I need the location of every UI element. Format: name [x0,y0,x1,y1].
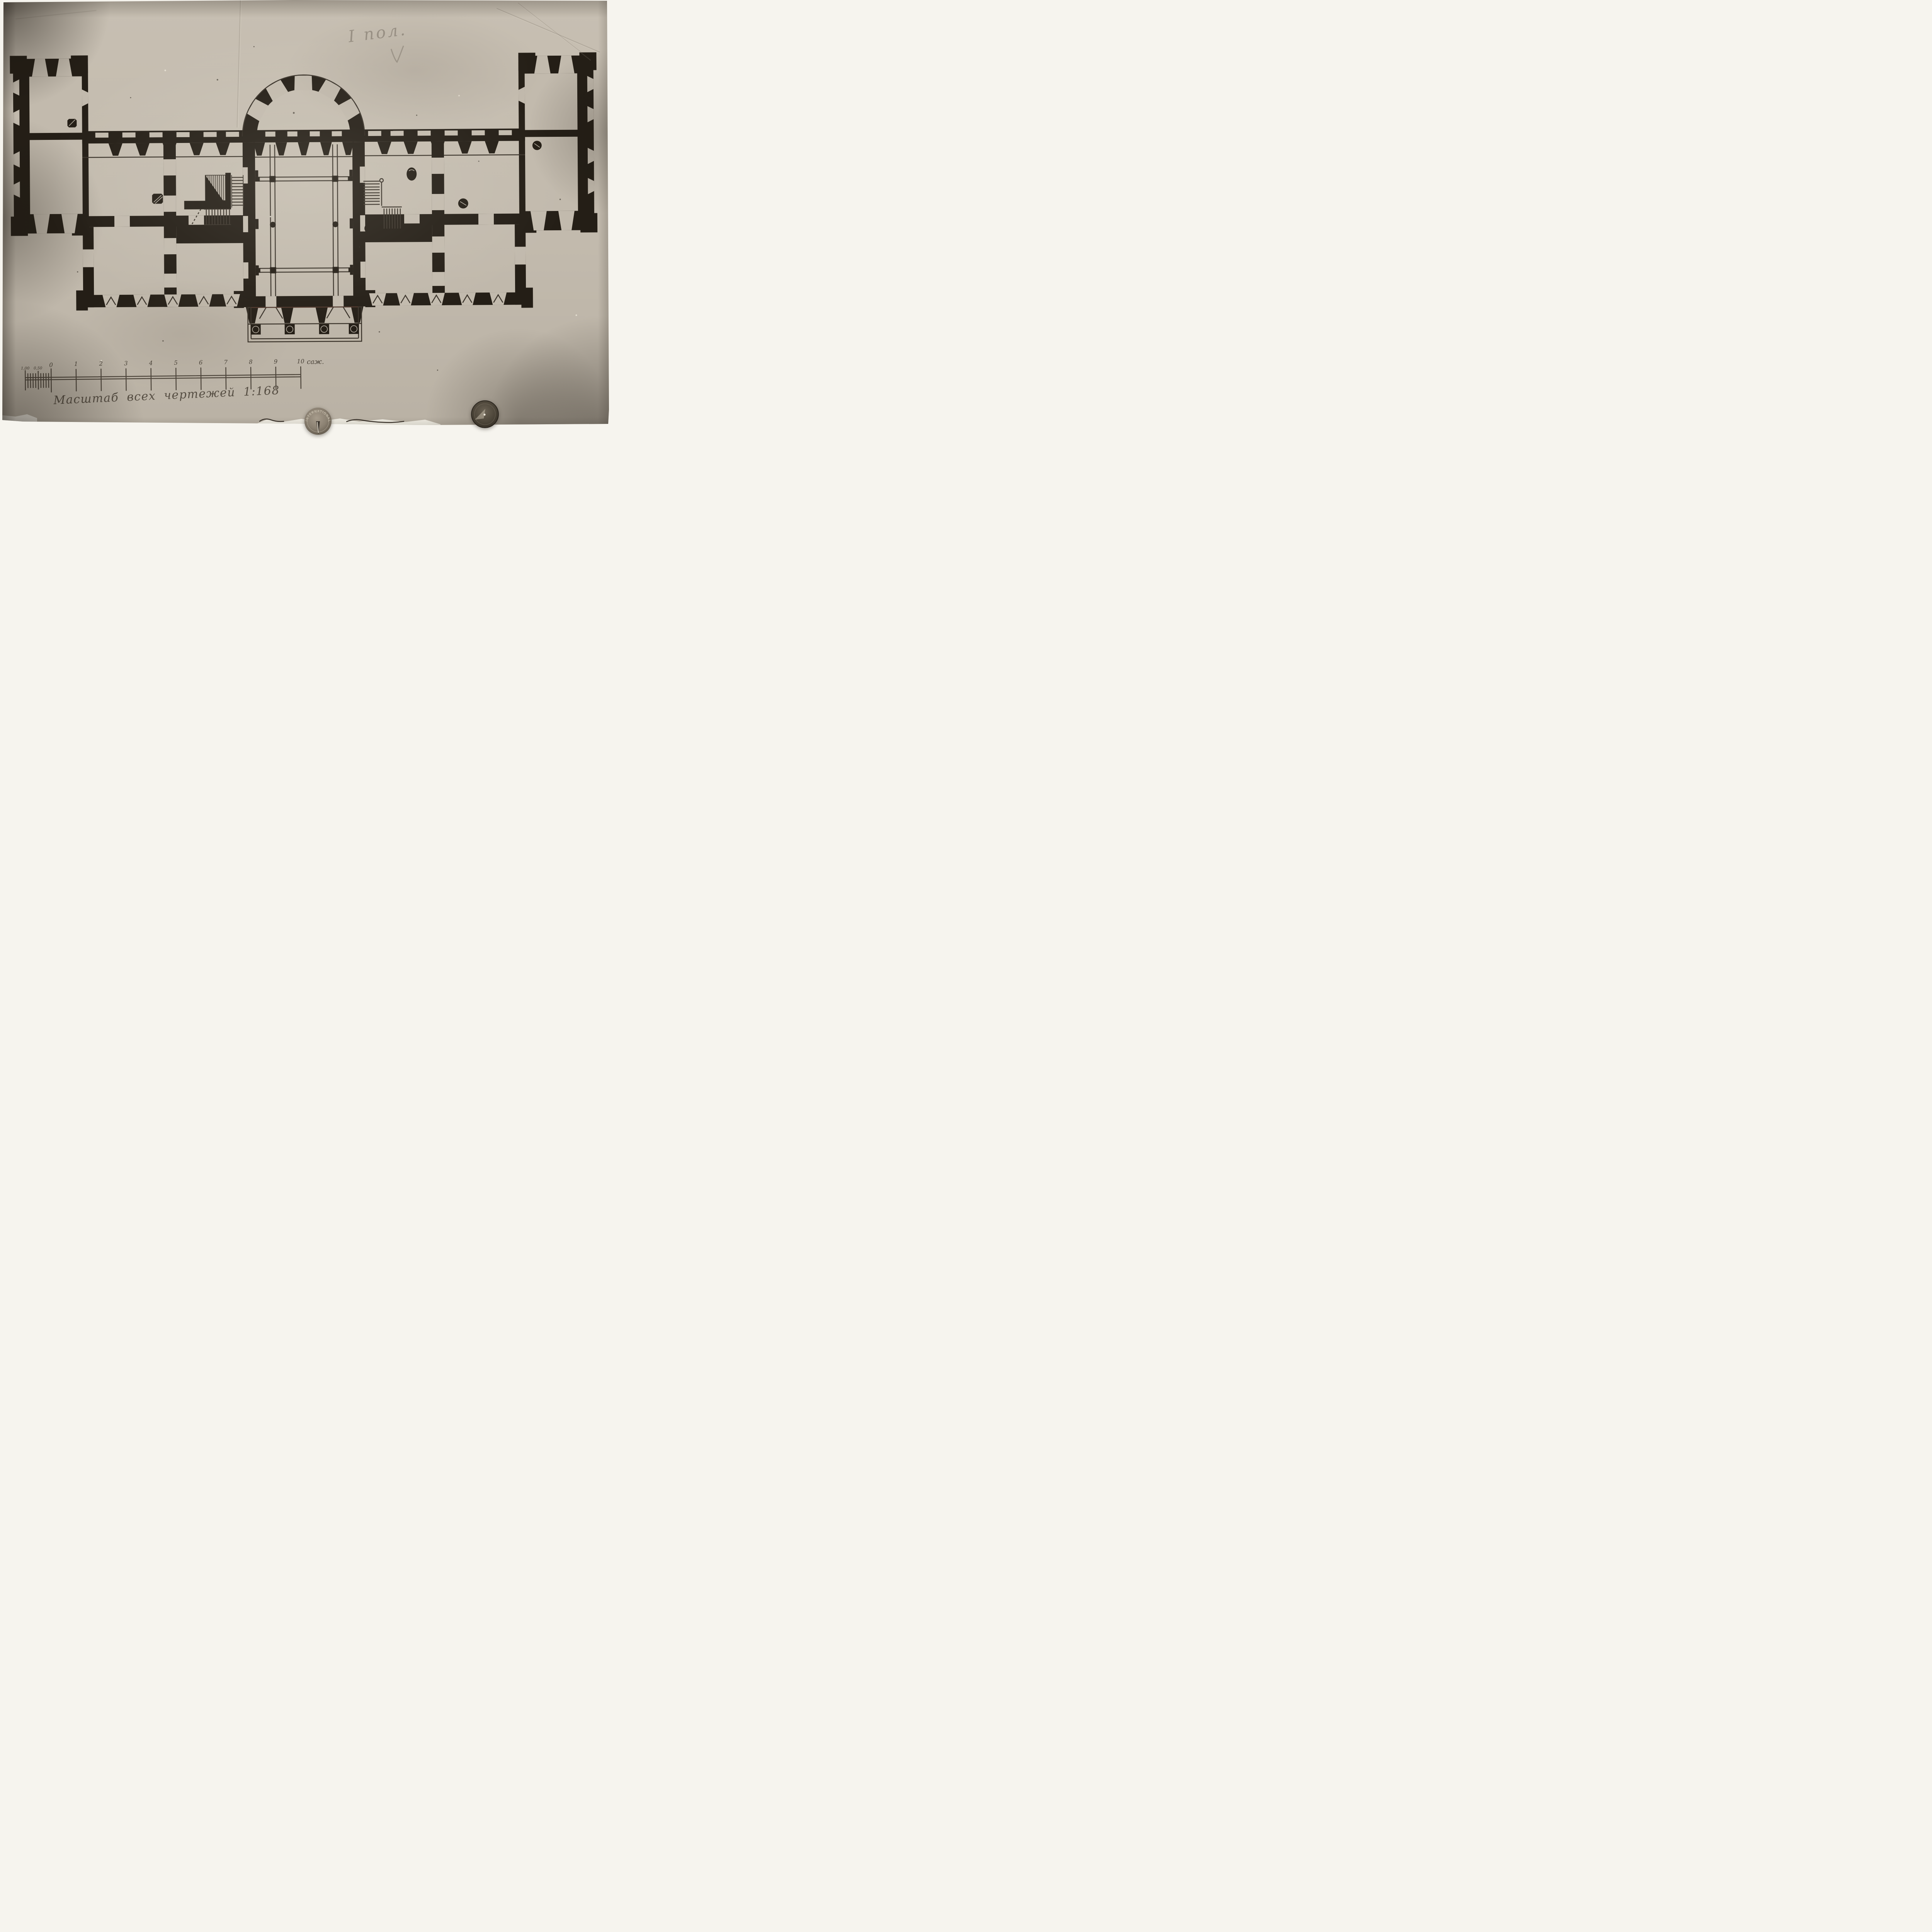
page-background: 1,00 0,50 0 1 2 3 4 5 6 7 8 9 10 саж. Ма… [0,0,610,439]
scale-label: 10 [297,358,304,365]
photograph: 1,00 0,50 0 1 2 3 4 5 6 7 8 9 10 саж. Ма… [0,0,610,439]
central-block [242,75,366,342]
scale-label: 1,00 [21,366,30,371]
scale-label: 1 [74,361,78,367]
pencil-check-mark [391,46,403,62]
floor-plan-drawing: 1,00 0,50 0 1 2 3 4 5 6 7 8 9 10 саж. Ма… [0,0,610,439]
scale-label: 3 [124,360,128,367]
scale-label: 4 [149,360,153,367]
portico-column-bases [251,324,359,335]
scale-label: 6 [199,359,203,366]
scale-label: 8 [249,359,253,366]
caption-handwriting: Масштаб всех чертежей 1:168 [53,384,280,407]
scale-label: 0,50 [34,366,43,371]
scale-label: 5 [174,359,178,366]
scale-label: 7 [224,359,228,366]
thumbtack-icon: INTERNATIONAL [303,405,333,436]
thumbtack-icon [470,399,500,429]
scale-unit-label: саж. [307,358,324,366]
scale-label: 2 [99,360,103,367]
right-wing-structure [364,52,598,309]
scale-label: 0 [49,361,53,368]
scale-label: 9 [274,358,278,365]
pencil-note: I пол. [347,20,408,46]
